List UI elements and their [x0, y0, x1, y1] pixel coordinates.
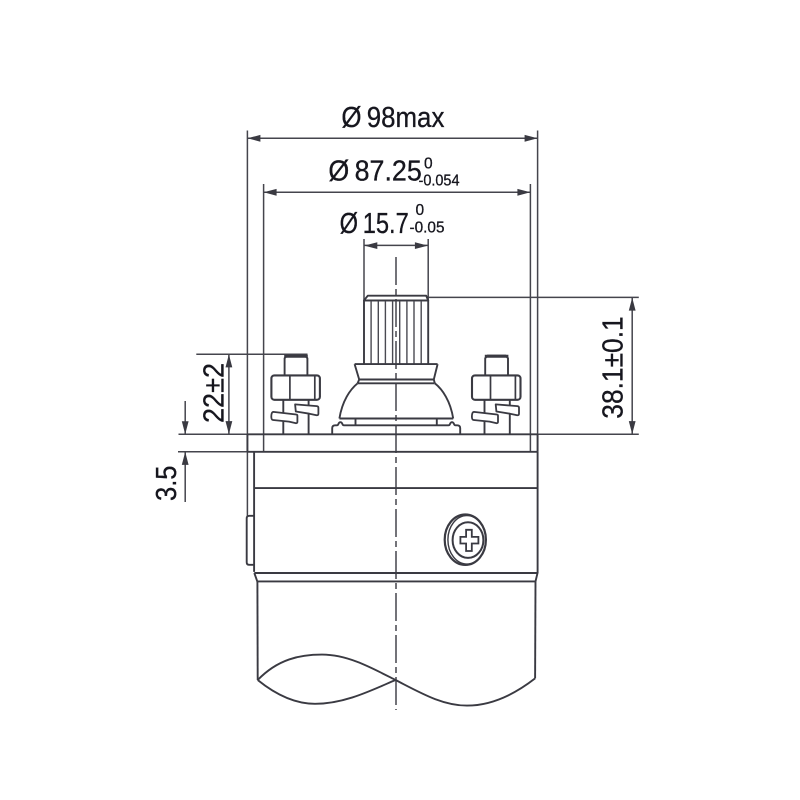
svg-text:0: 0 — [424, 156, 433, 173]
svg-text:Ø 15.7: Ø 15.7 — [340, 208, 409, 240]
svg-text:Ø 87.25: Ø 87.25 — [328, 155, 421, 187]
svg-text:-0.054: -0.054 — [419, 173, 460, 190]
svg-text:Ø 98max: Ø 98max — [341, 102, 444, 134]
svg-text:3.5: 3.5 — [151, 466, 183, 502]
svg-text:22±2: 22±2 — [199, 363, 231, 423]
svg-text:38.1±0.1: 38.1±0.1 — [598, 316, 630, 418]
svg-text:0: 0 — [416, 202, 425, 219]
svg-text:-0.05: -0.05 — [410, 220, 445, 237]
